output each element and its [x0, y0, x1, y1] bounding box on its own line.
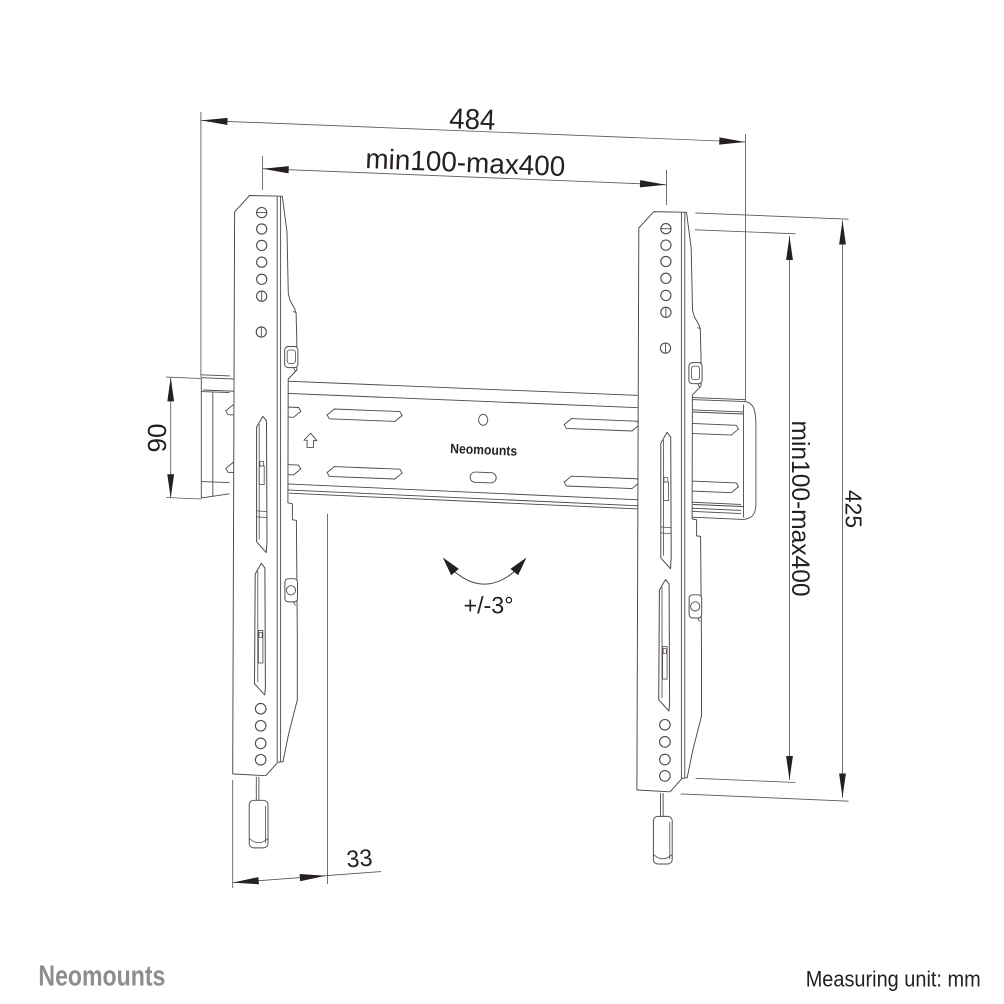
svg-text:Neomounts: Neomounts: [38, 961, 165, 993]
svg-text:+/-3°: +/-3°: [464, 593, 514, 620]
svg-text:425: 425: [841, 490, 867, 528]
svg-text:Measuring unit: mm: Measuring unit: mm: [806, 967, 981, 992]
svg-text:90: 90: [144, 424, 172, 453]
svg-text:min100-max400: min100-max400: [786, 421, 814, 597]
svg-text:33: 33: [345, 845, 373, 874]
svg-text:484: 484: [449, 103, 496, 137]
svg-text:Neomounts: Neomounts: [450, 441, 518, 459]
